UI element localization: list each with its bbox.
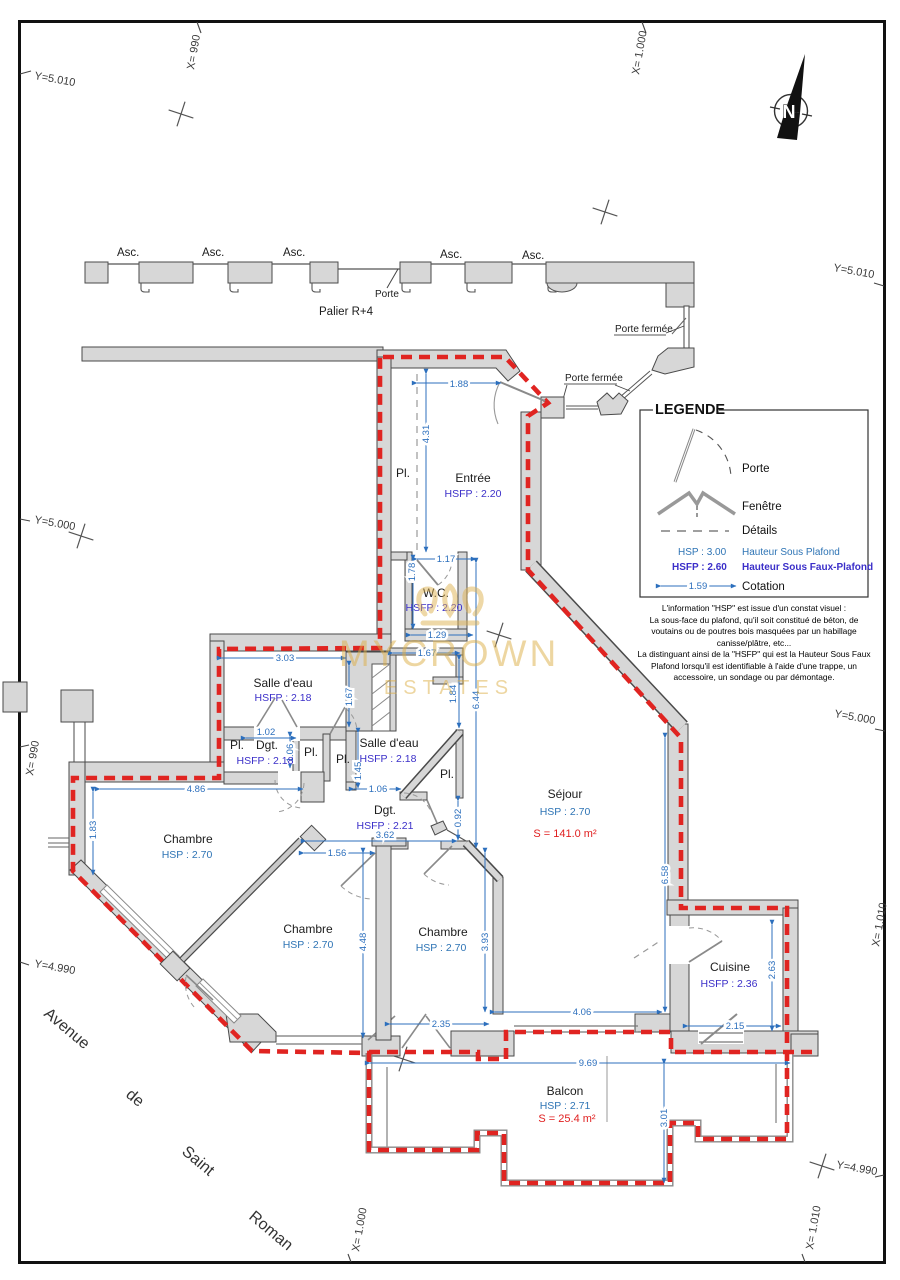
svg-text:3.01: 3.01	[659, 1109, 670, 1128]
svg-text:Fenêtre: Fenêtre	[742, 501, 782, 513]
svg-text:Pl.: Pl.	[440, 767, 454, 781]
svg-text:9.69: 9.69	[579, 1058, 598, 1069]
svg-text:Dgt.: Dgt.	[374, 803, 396, 817]
svg-text:S = 25.4 m²: S = 25.4 m²	[538, 1113, 596, 1125]
svg-text:accessoire, un sondage ou par: accessoire, un sondage ou par démontage.	[673, 672, 834, 682]
svg-text:Asc.: Asc.	[522, 250, 544, 262]
svg-text:HSFP : 2.60: HSFP : 2.60	[672, 562, 727, 573]
svg-text:Pl.: Pl.	[336, 752, 350, 766]
svg-text:4.48: 4.48	[358, 933, 369, 952]
svg-text:HSFP : 2.36: HSFP : 2.36	[700, 978, 757, 990]
svg-text:HSP : 2.70: HSP : 2.70	[540, 806, 591, 818]
svg-text:Pl.: Pl.	[230, 738, 244, 752]
svg-text:S = 141.0 m²: S = 141.0 m²	[533, 828, 597, 840]
svg-text:MYCROWN: MYCROWN	[339, 633, 559, 674]
svg-text:Détails: Détails	[742, 525, 777, 537]
svg-text:4.86: 4.86	[187, 784, 206, 795]
svg-text:Salle d'eau: Salle d'eau	[359, 736, 418, 750]
svg-text:canisse/plâtre, etc...: canisse/plâtre, etc...	[717, 638, 791, 648]
svg-text:1.78: 1.78	[407, 563, 418, 582]
svg-text:HSP : 3.00: HSP : 3.00	[678, 547, 727, 558]
svg-text:1.17: 1.17	[437, 554, 456, 565]
svg-text:1.56: 1.56	[328, 848, 347, 859]
svg-text:1.83: 1.83	[88, 821, 99, 840]
svg-text:Chambre: Chambre	[283, 922, 333, 936]
svg-text:4.31: 4.31	[421, 425, 432, 444]
svg-text:HSFP : 2.20: HSFP : 2.20	[444, 488, 501, 500]
svg-text:Porte fermée: Porte fermée	[615, 324, 673, 335]
svg-text:Pl.: Pl.	[396, 466, 410, 480]
svg-text:Salle d'eau: Salle d'eau	[253, 676, 312, 690]
svg-text:2.35: 2.35	[432, 1019, 451, 1030]
svg-text:Balcon: Balcon	[547, 1084, 584, 1098]
svg-text:1.59: 1.59	[689, 581, 708, 592]
svg-text:3.93: 3.93	[480, 933, 491, 952]
svg-text:L'information "HSP" est issue: L'information "HSP" est issue d'un const…	[662, 603, 846, 613]
svg-text:Entrée: Entrée	[455, 471, 491, 485]
svg-text:Asc.: Asc.	[202, 247, 224, 259]
svg-text:0.92: 0.92	[453, 809, 464, 828]
svg-text:Séjour: Séjour	[548, 787, 583, 801]
svg-text:LEGENDE: LEGENDE	[655, 402, 725, 418]
svg-text:HSFP : 2.18: HSFP : 2.18	[359, 753, 416, 765]
svg-text:1.67: 1.67	[344, 688, 355, 707]
svg-text:6.58: 6.58	[660, 866, 671, 885]
svg-text:La distinguant ainsi de la "HS: La distinguant ainsi de la "HSFP" qui es…	[637, 649, 871, 659]
svg-text:Dgt.: Dgt.	[256, 738, 278, 752]
svg-text:HSP : 2.70: HSP : 2.70	[162, 849, 213, 861]
svg-text:La sous-face du plafond, qu'il: La sous-face du plafond, qu'il soit cons…	[650, 615, 859, 625]
svg-text:3.03: 3.03	[276, 653, 295, 664]
svg-text:HSP : 2.71: HSP : 2.71	[540, 1100, 591, 1112]
svg-text:ESTATES: ESTATES	[384, 677, 514, 699]
svg-text:Palier R+4: Palier R+4	[319, 306, 374, 318]
svg-text:Chambre: Chambre	[418, 925, 468, 939]
svg-text:Porte: Porte	[742, 463, 770, 475]
svg-text:Cotation: Cotation	[742, 581, 785, 593]
svg-text:Porte fermée: Porte fermée	[565, 373, 623, 384]
svg-text:Asc.: Asc.	[440, 249, 462, 261]
svg-text:1.88: 1.88	[450, 379, 469, 390]
svg-text:HSFP : 2.18: HSFP : 2.18	[254, 692, 311, 704]
svg-text:Hauteur Sous Plafond: Hauteur Sous Plafond	[742, 547, 840, 558]
svg-text:HSFP : 2.18: HSFP : 2.18	[236, 755, 293, 767]
svg-text:voutains ou de poutres bois ma: voutains ou de poutres bois masquées par…	[651, 626, 857, 636]
svg-text:1.06: 1.06	[369, 784, 388, 795]
svg-text:Cuisine: Cuisine	[710, 960, 750, 974]
svg-text:Porte: Porte	[375, 289, 399, 300]
svg-text:Asc.: Asc.	[283, 247, 305, 259]
svg-text:4.06: 4.06	[573, 1007, 592, 1018]
svg-text:Pl.: Pl.	[304, 745, 318, 759]
svg-text:1.02: 1.02	[257, 727, 276, 738]
svg-text:Asc.: Asc.	[117, 247, 139, 259]
svg-text:2.63: 2.63	[767, 961, 778, 980]
svg-text:N: N	[783, 102, 796, 122]
svg-text:HSP : 2.70: HSP : 2.70	[416, 942, 467, 954]
svg-text:Chambre: Chambre	[163, 832, 213, 846]
svg-text:HSFP : 2.21: HSFP : 2.21	[356, 820, 413, 832]
svg-text:Hauteur Sous Faux-Plafond: Hauteur Sous Faux-Plafond	[742, 562, 873, 573]
svg-text:2.15: 2.15	[726, 1021, 745, 1032]
svg-text:Plafond lorsqu'il est identifi: Plafond lorsqu'il est identifiable à l'a…	[651, 661, 857, 671]
svg-text:HSP : 2.70: HSP : 2.70	[283, 939, 334, 951]
